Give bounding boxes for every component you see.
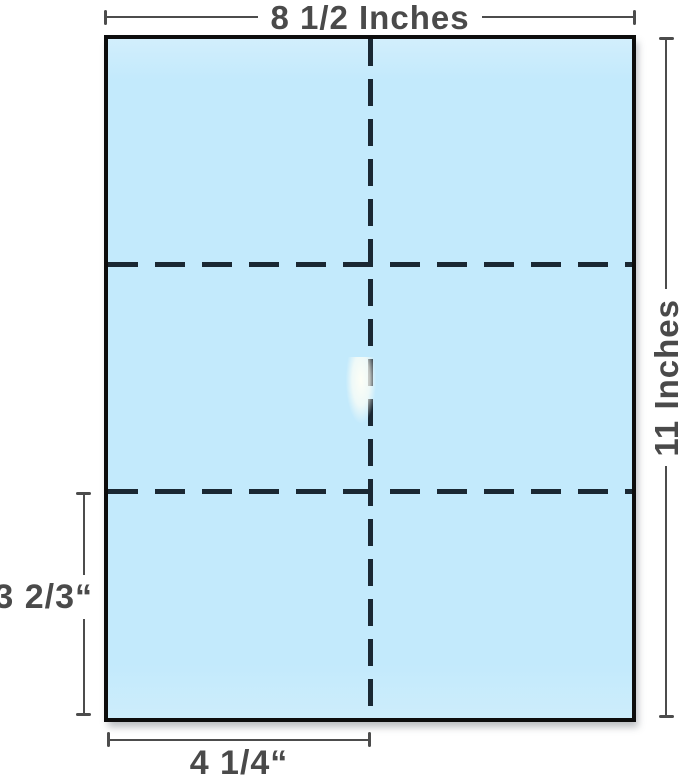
section-height-dimension: 3 2/3“	[76, 492, 91, 716]
dimension-tick-bottom	[659, 715, 674, 718]
sheet-width-label: 8 1/2 Inches	[258, 1, 481, 34]
dimension-line-segment	[665, 466, 667, 715]
section-height-label: 3 2/3“	[0, 580, 93, 614]
sheet-height-dimension: 11 Inches	[651, 37, 679, 718]
dimension-tick-right	[368, 732, 371, 747]
dimension-line-segment	[482, 16, 633, 18]
dimension-line-segment	[107, 16, 258, 18]
sheet-height-label: 11 Inches	[650, 289, 679, 467]
section-width-label: 4 1/4“	[107, 746, 371, 780]
sheet-width-dimension: 8 1/2 Inches	[104, 1, 636, 33]
dimension-line-segment	[83, 619, 85, 713]
dimension-tick-right	[633, 10, 636, 25]
diagram-canvas: 8 1/2 Inches 11 Inches 3 2/3“ 4 1/4“	[0, 0, 679, 780]
dimension-line-segment	[83, 495, 85, 575]
dimension-line-segment	[110, 739, 368, 741]
paper-sheet	[104, 35, 636, 722]
dimension-line-segment	[665, 40, 667, 289]
dimension-tick-bottom	[76, 713, 91, 716]
glare-spot	[346, 357, 376, 423]
